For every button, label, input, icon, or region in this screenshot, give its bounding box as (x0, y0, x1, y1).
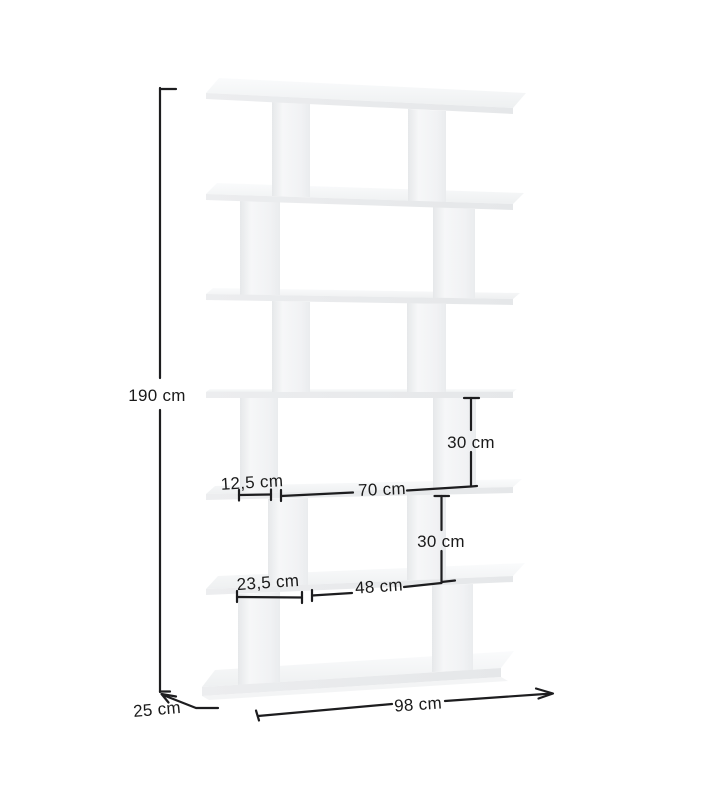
divider-row2-right (433, 207, 475, 298)
depth-label: 25 cm (132, 698, 181, 721)
divider-row3-left (272, 301, 310, 392)
height-label: 190 cm (128, 386, 186, 405)
lower-gap-label: 30 cm (417, 532, 465, 551)
shelf-4-top (206, 389, 517, 392)
upper-offset-line (239, 495, 271, 496)
divider-row1-left (272, 102, 310, 197)
bookcase-illustration (202, 78, 526, 700)
width-line-left (258, 704, 392, 716)
width-line-right (445, 694, 552, 702)
divider-row3-right (407, 303, 446, 392)
bookcase-dimension-drawing: 190 cm 25 cm 98 cm 30 cm 30 cm 12,5 cm 7… (0, 0, 728, 800)
upper-gap-label: 30 cm (447, 433, 495, 452)
upper-span-label: 70 cm (358, 479, 407, 500)
lower-span-line-left (312, 593, 352, 596)
width-label: 98 cm (394, 693, 443, 715)
product-dimension-diagram: 190 cm 25 cm 98 cm 30 cm 30 cm 12,5 cm 7… (0, 0, 728, 800)
upper-offset-label: 12,5 cm (220, 471, 284, 494)
lower-offset-line (237, 597, 302, 598)
lower-span-label: 48 cm (354, 575, 403, 597)
divider-row1-right (408, 109, 446, 202)
divider-row6-left (238, 592, 280, 685)
divider-row2-left (240, 201, 280, 295)
divider-row6-right (432, 584, 473, 672)
dimension-lines (160, 88, 553, 721)
